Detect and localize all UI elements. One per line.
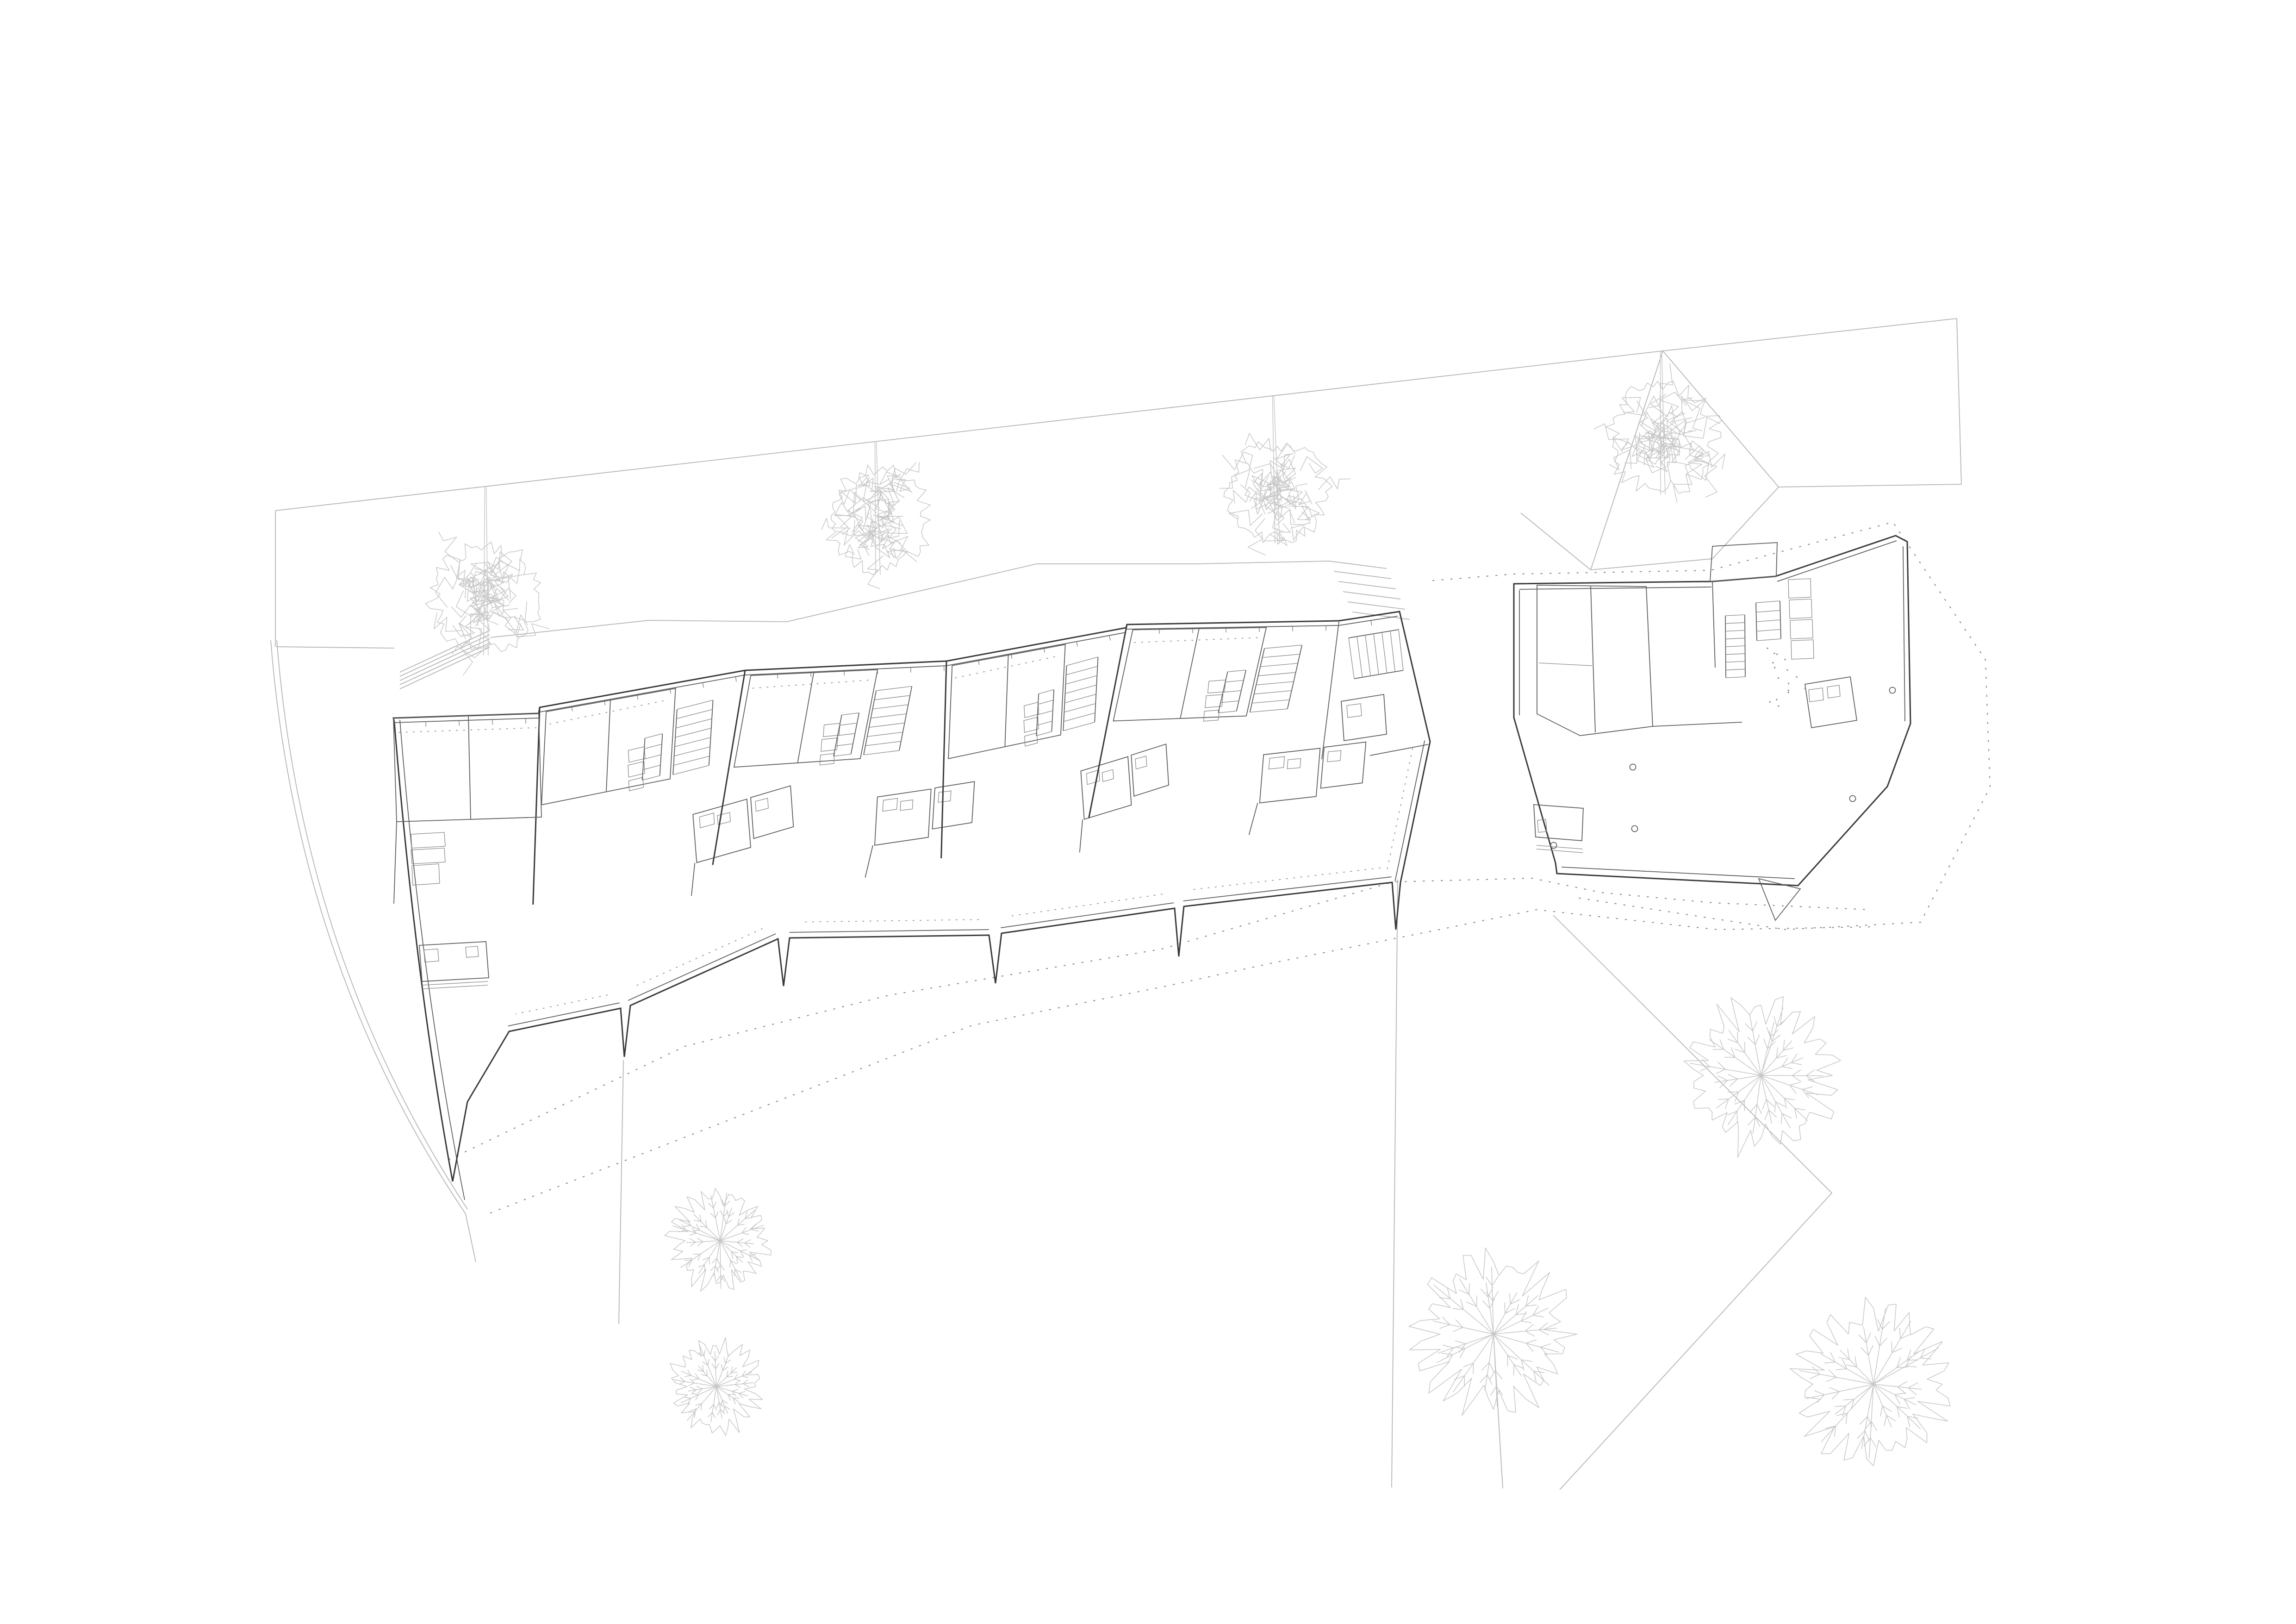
round-tree	[425, 487, 549, 675]
dwelling-bay-6	[1322, 622, 1428, 759]
site-boundaries	[271, 319, 1961, 1490]
dwelling-bay-4	[941, 644, 1169, 858]
site-plan-drawing	[0, 0, 2296, 1624]
star-tree	[670, 1337, 763, 1436]
dwelling-bay-5	[1089, 625, 1366, 835]
round-tree	[821, 442, 931, 589]
site-plan-canvas	[0, 0, 2296, 1624]
dwelling-bay-2	[533, 688, 794, 905]
dotted-paths	[449, 522, 1990, 1213]
star-tree	[665, 1188, 771, 1292]
star-tree	[1409, 1248, 1577, 1416]
dwelling-bay-1	[393, 713, 541, 989]
star-tree	[1790, 1297, 1950, 1466]
garden-steps	[400, 561, 1410, 689]
dwelling-bay-3	[713, 670, 975, 878]
round-tree	[1220, 396, 1350, 555]
star-tree	[1684, 997, 1841, 1157]
detached-building	[1514, 536, 1910, 920]
main-terraced-building	[393, 612, 1430, 1181]
round-tree	[1594, 351, 1725, 503]
main-building-window-band	[393, 616, 1398, 727]
